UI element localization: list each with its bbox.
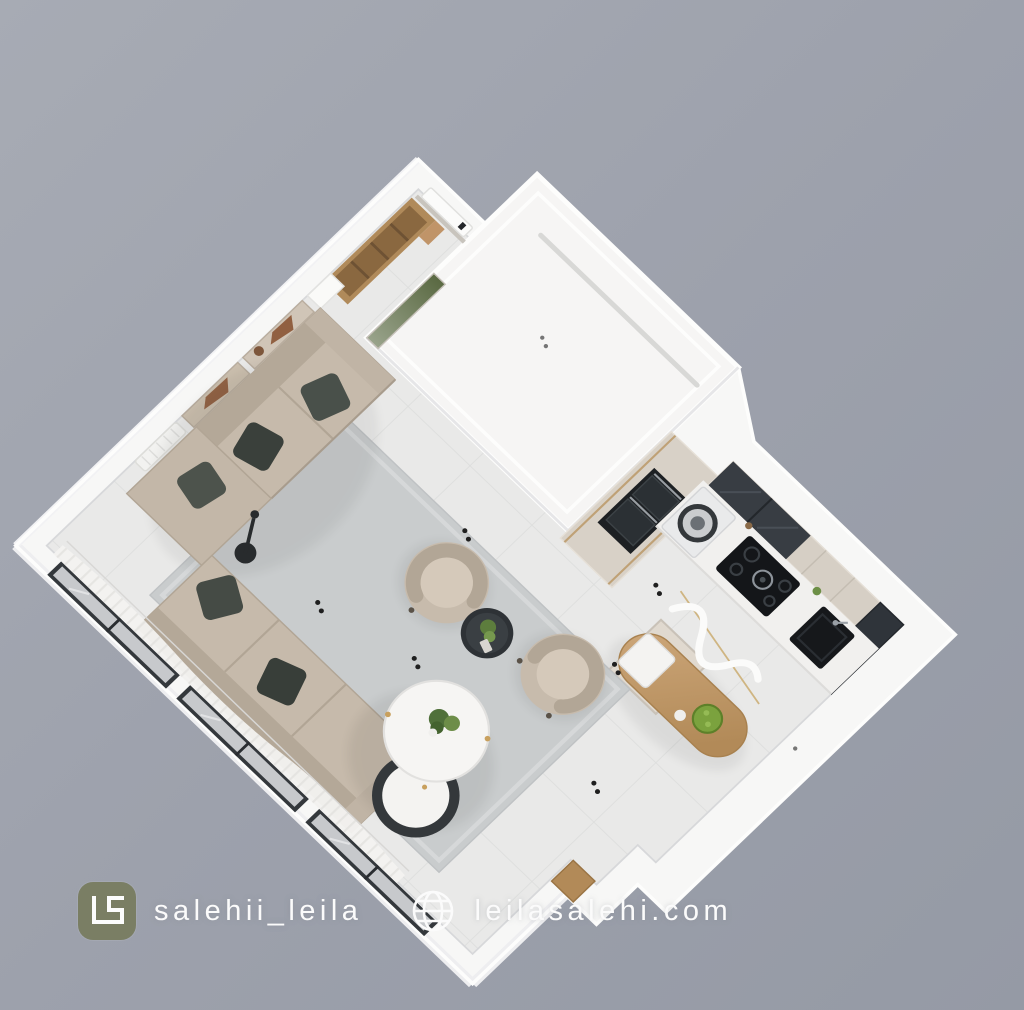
ls-monogram-icon	[87, 893, 127, 929]
screenshot-root: salehii_leila leilasalehi.com	[0, 0, 1024, 1010]
globe-icon	[410, 888, 456, 934]
instagram-handle: salehii_leila	[154, 895, 362, 928]
apartment-3d-render	[0, 0, 1024, 1010]
leila-salehi-logo	[78, 882, 136, 940]
website-url: leilasalehi.com	[474, 895, 732, 928]
watermark-bar: salehii_leila leilasalehi.com	[78, 880, 732, 942]
